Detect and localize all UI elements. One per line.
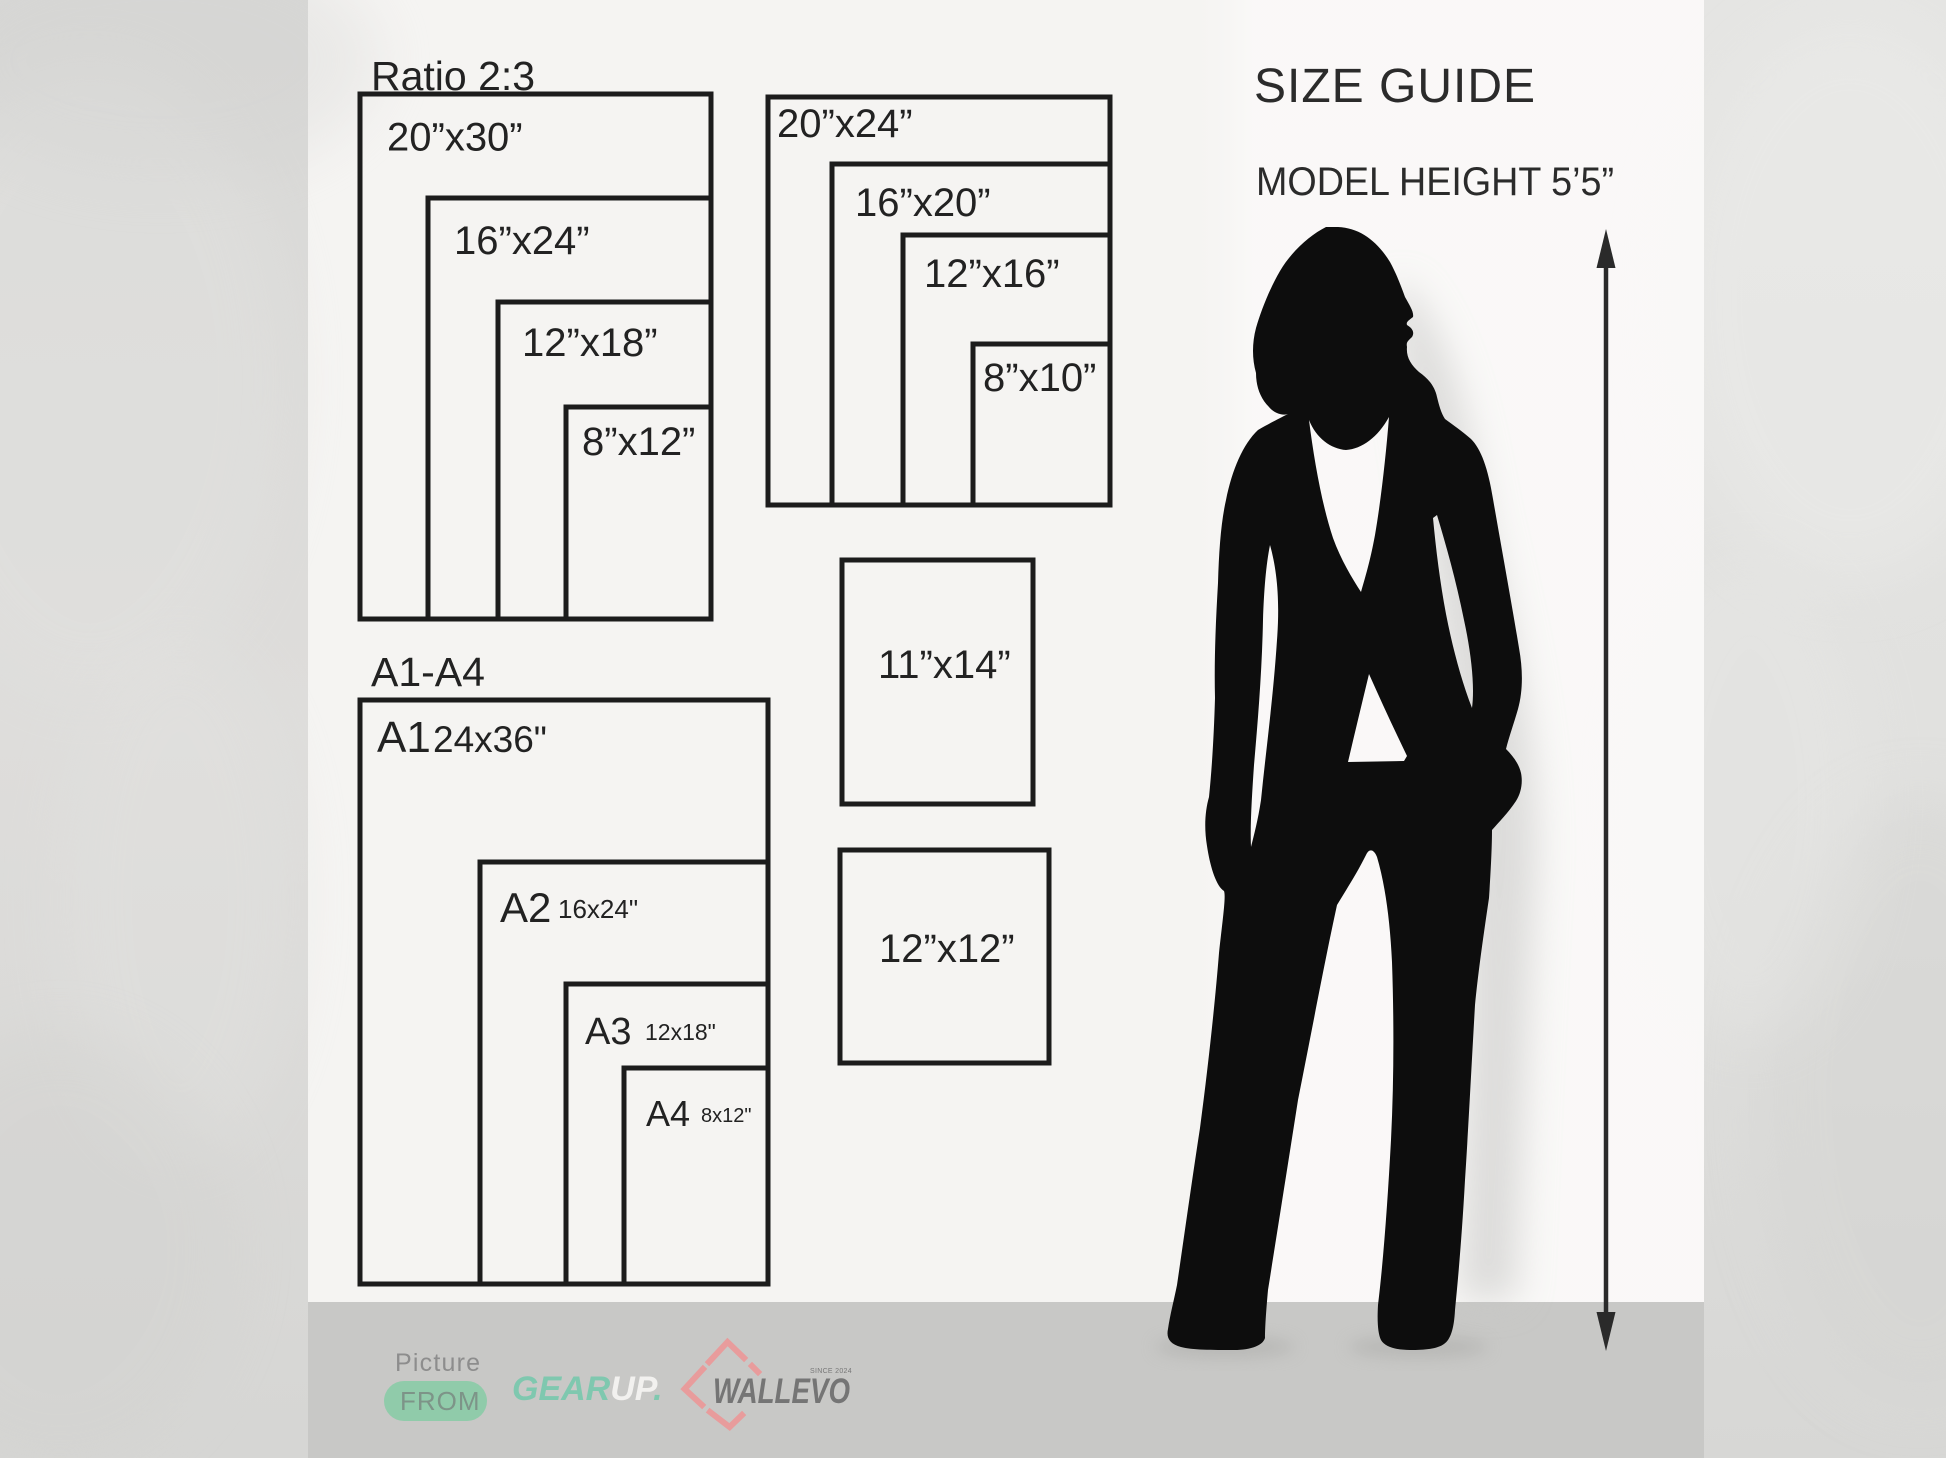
svg-text:12x18": 12x18" bbox=[645, 1019, 716, 1045]
svg-text:24x36": 24x36" bbox=[433, 719, 547, 760]
svg-text:A4: A4 bbox=[646, 1093, 690, 1134]
svg-text:A3: A3 bbox=[585, 1011, 631, 1053]
svg-text:GEARUP.: GEARUP. bbox=[512, 1370, 663, 1408]
svg-text:11”x14”: 11”x14” bbox=[878, 643, 1011, 687]
svg-text:16”x20”: 16”x20” bbox=[855, 181, 991, 225]
svg-text:8”x10”: 8”x10” bbox=[983, 356, 1096, 400]
svg-text:WALLEVO: WALLEVO bbox=[713, 1372, 850, 1411]
svg-text:16”x24”: 16”x24” bbox=[454, 219, 590, 263]
svg-text:SINCE 2024: SINCE 2024 bbox=[810, 1368, 852, 1375]
svg-text:20”x30”: 20”x30” bbox=[387, 116, 523, 160]
svg-text:12”x16”: 12”x16” bbox=[924, 252, 1060, 296]
svg-text:A1: A1 bbox=[377, 713, 431, 762]
svg-text:8”x12”: 8”x12” bbox=[582, 420, 695, 464]
svg-text:A1-A4: A1-A4 bbox=[371, 649, 485, 695]
svg-text:Picture: Picture bbox=[395, 1349, 481, 1377]
svg-text:20”x24”: 20”x24” bbox=[777, 102, 913, 146]
svg-text:12”x12”: 12”x12” bbox=[879, 927, 1015, 971]
svg-text:A2: A2 bbox=[500, 884, 551, 931]
svg-text:12”x18”: 12”x18” bbox=[522, 321, 658, 365]
svg-text:16x24": 16x24" bbox=[558, 894, 638, 924]
svg-text:SIZE GUIDE: SIZE GUIDE bbox=[1254, 60, 1536, 113]
svg-text:FROM: FROM bbox=[400, 1386, 481, 1416]
svg-text:MODEL HEIGHT 5’5”: MODEL HEIGHT 5’5” bbox=[1256, 160, 1614, 204]
svg-text:8x12": 8x12" bbox=[701, 1105, 751, 1127]
